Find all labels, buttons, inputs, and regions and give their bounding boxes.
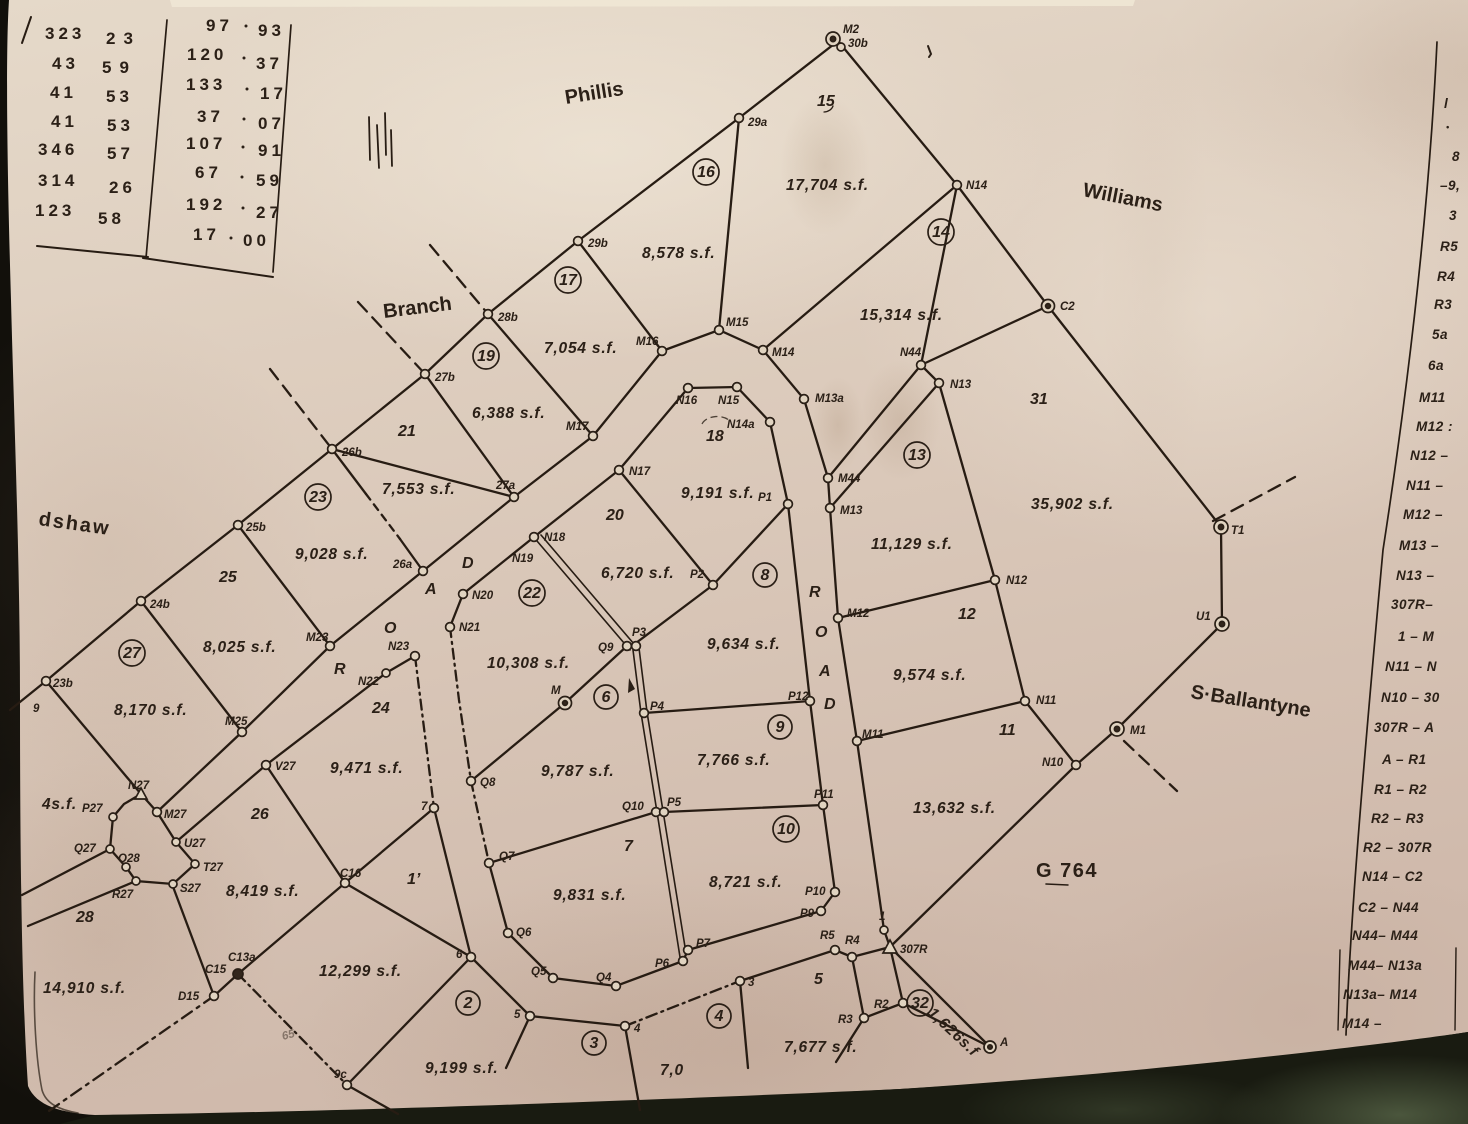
svg-text:29a: 29a <box>747 117 768 129</box>
svg-text:M44: M44 <box>838 473 861 485</box>
svg-text:M15: M15 <box>726 317 749 329</box>
svg-text:A: A <box>818 663 831 680</box>
svg-text:•: • <box>1446 122 1450 132</box>
svg-text:A – R1: A – R1 <box>1381 752 1427 767</box>
svg-text:22: 22 <box>522 585 541 602</box>
svg-text:8,721 s.f.: 8,721 s.f. <box>709 874 783 891</box>
svg-text:3: 3 <box>748 977 755 989</box>
svg-text:Q9: Q9 <box>598 642 614 654</box>
svg-text:37: 37 <box>256 54 283 73</box>
svg-text:N18: N18 <box>544 532 566 544</box>
svg-text:4: 4 <box>633 1023 641 1035</box>
svg-text:1: 1 <box>879 911 885 923</box>
svg-text:24b: 24b <box>149 599 170 611</box>
svg-text:N10: N10 <box>1042 757 1064 769</box>
svg-text:23: 23 <box>106 29 141 48</box>
svg-text:28: 28 <box>75 909 94 926</box>
svg-text:D: D <box>462 555 474 572</box>
svg-text:91: 91 <box>258 141 285 160</box>
svg-text:9: 9 <box>776 719 785 736</box>
svg-text:59: 59 <box>256 171 283 190</box>
svg-text:N21: N21 <box>459 622 480 634</box>
svg-text:4s.f.: 4s.f. <box>41 796 77 813</box>
svg-text:N11 –: N11 – <box>1406 478 1444 493</box>
svg-text:P27: P27 <box>82 803 103 815</box>
svg-text:7,054 s.f.: 7,054 s.f. <box>544 340 618 357</box>
svg-text:Q5: Q5 <box>531 966 547 978</box>
svg-text:R2: R2 <box>874 999 889 1011</box>
svg-text:11,129 s.f.: 11,129 s.f. <box>871 536 953 553</box>
svg-text:7: 7 <box>624 838 634 855</box>
svg-text:11: 11 <box>999 722 1016 739</box>
svg-text:6,388 s.f.: 6,388 s.f. <box>472 405 546 422</box>
svg-text:C13a: C13a <box>228 952 256 964</box>
svg-text:97: 97 <box>206 16 233 35</box>
svg-text:9,191 s.f.: 9,191 s.f. <box>681 485 755 502</box>
svg-text:6,720 s.f.: 6,720 s.f. <box>601 565 675 582</box>
svg-text:17: 17 <box>193 225 220 244</box>
svg-text:N23: N23 <box>388 641 410 653</box>
svg-text:N11: N11 <box>1036 695 1056 707</box>
svg-text:M25: M25 <box>225 716 248 728</box>
svg-text:N12: N12 <box>1006 575 1028 587</box>
svg-text:9: 9 <box>33 703 40 715</box>
svg-text:l: l <box>1444 96 1448 111</box>
svg-text:6: 6 <box>456 949 463 961</box>
svg-text:123: 123 <box>35 201 75 220</box>
svg-text:7,0: 7,0 <box>660 1062 684 1079</box>
svg-text:43: 43 <box>52 54 79 73</box>
svg-text:27a: 27a <box>495 480 516 492</box>
svg-text:P4: P4 <box>650 701 665 713</box>
svg-text:M13a: M13a <box>815 393 844 405</box>
svg-text:M1: M1 <box>1130 725 1146 737</box>
svg-text:9c: 9c <box>334 1069 347 1081</box>
svg-text:R27: R27 <box>112 889 134 901</box>
svg-text:M14 –: M14 – <box>1342 1016 1382 1031</box>
svg-text:21: 21 <box>397 423 416 440</box>
svg-text:A: A <box>424 581 437 598</box>
svg-text:30b: 30b <box>848 38 868 50</box>
svg-text:Q8: Q8 <box>480 777 496 789</box>
svg-text:12: 12 <box>958 606 976 623</box>
svg-text:3: 3 <box>590 1035 599 1052</box>
svg-text:17: 17 <box>559 272 578 289</box>
svg-text:307R: 307R <box>900 944 928 956</box>
svg-text:25b: 25b <box>245 522 266 534</box>
svg-text:32: 32 <box>911 995 929 1012</box>
svg-text:1 – M: 1 – M <box>1398 629 1435 644</box>
svg-text:346: 346 <box>38 140 78 159</box>
svg-text:20: 20 <box>605 507 624 524</box>
svg-text:M27: M27 <box>164 809 187 821</box>
svg-text:R4: R4 <box>1437 269 1455 284</box>
svg-text:8: 8 <box>761 567 770 584</box>
svg-text:9,634 s.f.: 9,634 s.f. <box>707 636 781 653</box>
svg-text:R2 – 307R: R2 – 307R <box>1363 840 1432 855</box>
svg-text:R5: R5 <box>1440 239 1458 254</box>
svg-text:M12: M12 <box>847 608 870 620</box>
svg-text:N44: N44 <box>900 347 922 359</box>
svg-text:Q7: Q7 <box>499 851 515 863</box>
svg-text:M12 –: M12 – <box>1403 507 1443 522</box>
svg-text:24: 24 <box>371 700 390 717</box>
svg-text:31: 31 <box>1030 391 1048 408</box>
svg-text:N12 –: N12 – <box>1410 448 1449 463</box>
svg-text:P5: P5 <box>667 797 682 809</box>
svg-text:192: 192 <box>186 195 226 214</box>
svg-text:27b: 27b <box>434 372 455 384</box>
svg-text:9,199 s.f.: 9,199 s.f. <box>425 1060 499 1077</box>
svg-text:8,578 s.f.: 8,578 s.f. <box>642 245 716 262</box>
svg-text:Q6: Q6 <box>516 927 532 939</box>
svg-text:25: 25 <box>218 569 238 586</box>
svg-text:N13 –: N13 – <box>1396 568 1435 583</box>
svg-text:67: 67 <box>195 163 222 182</box>
svg-text:P9: P9 <box>800 908 815 920</box>
svg-text:13: 13 <box>908 447 926 464</box>
svg-text:A: A <box>999 1037 1008 1049</box>
svg-text:M11: M11 <box>862 729 884 741</box>
svg-text:00: 00 <box>243 231 270 250</box>
svg-text:R3: R3 <box>838 1014 853 1026</box>
svg-text:P12: P12 <box>788 691 809 703</box>
svg-text:18: 18 <box>706 428 724 445</box>
svg-text:P6: P6 <box>655 958 670 970</box>
svg-text:12,299 s.f.: 12,299 s.f. <box>319 963 402 980</box>
svg-text:107: 107 <box>186 134 226 153</box>
svg-text:23b: 23b <box>52 678 73 690</box>
svg-text:T27: T27 <box>203 862 223 874</box>
svg-text:R4: R4 <box>845 935 860 947</box>
svg-text:58: 58 <box>98 209 125 228</box>
svg-text:M: M <box>551 685 561 697</box>
svg-text:07: 07 <box>258 114 285 133</box>
svg-text:T1: T1 <box>1231 525 1244 537</box>
svg-text:N14 – C2: N14 – C2 <box>1362 869 1423 884</box>
svg-text:17,704 s.f.: 17,704 s.f. <box>786 177 869 194</box>
svg-text:P2: P2 <box>690 569 705 581</box>
svg-text:120: 120 <box>187 45 227 64</box>
svg-text:15: 15 <box>817 93 836 110</box>
svg-text:59: 59 <box>102 58 137 77</box>
svg-text:16: 16 <box>697 164 715 181</box>
svg-text:314: 314 <box>38 171 78 190</box>
svg-text:14: 14 <box>932 224 950 241</box>
svg-text:P1: P1 <box>758 492 772 504</box>
svg-text:14,910 s.f.: 14,910 s.f. <box>43 980 126 997</box>
svg-text:Q27: Q27 <box>74 843 96 855</box>
svg-text:8,025 s.f.: 8,025 s.f. <box>203 639 277 656</box>
svg-text:13,632 s.f.: 13,632 s.f. <box>913 800 996 817</box>
svg-text:M13 –: M13 – <box>1399 538 1439 553</box>
svg-text:9,028 s.f.: 9,028 s.f. <box>295 546 369 563</box>
svg-text:35,902 s.f.: 35,902 s.f. <box>1031 496 1114 513</box>
svg-text:C16: C16 <box>340 868 362 880</box>
svg-text:41: 41 <box>50 83 77 102</box>
svg-text:9,471 s.f.: 9,471 s.f. <box>330 760 404 777</box>
svg-text:26b: 26b <box>341 447 362 459</box>
svg-text:R3: R3 <box>1434 297 1452 312</box>
svg-text:7,677 s.f.: 7,677 s.f. <box>784 1039 858 1056</box>
svg-text:5: 5 <box>814 971 824 988</box>
svg-text:23: 23 <box>308 489 327 506</box>
svg-text:8,419 s.f.: 8,419 s.f. <box>226 883 300 900</box>
svg-text:4: 4 <box>714 1008 724 1025</box>
svg-text:M13: M13 <box>840 505 863 517</box>
svg-text:–9,: –9, <box>1440 178 1460 193</box>
svg-text:M44– N13a: M44– N13a <box>1348 958 1422 973</box>
svg-text:C15: C15 <box>205 964 227 976</box>
svg-text:S27: S27 <box>180 883 201 895</box>
svg-text:27: 27 <box>256 203 283 222</box>
svg-text:M12 :: M12 : <box>1416 419 1453 434</box>
svg-text:M11: M11 <box>1419 390 1446 405</box>
svg-text:1’: 1’ <box>407 871 421 888</box>
svg-text:N14: N14 <box>966 180 988 192</box>
svg-text:2: 2 <box>463 995 473 1012</box>
svg-text:N44– M44: N44– M44 <box>1352 928 1418 943</box>
svg-text:19: 19 <box>477 348 495 365</box>
svg-text:7,766 s.f.: 7,766 s.f. <box>697 752 771 769</box>
svg-text:37: 37 <box>197 107 224 126</box>
svg-text:28b: 28b <box>497 312 518 324</box>
svg-text:N27: N27 <box>128 780 150 792</box>
svg-text:N14a: N14a <box>727 419 755 431</box>
svg-text:D: D <box>824 696 836 713</box>
svg-text:15,314 s.f.: 15,314 s.f. <box>860 307 943 324</box>
svg-text:9,831 s.f.: 9,831 s.f. <box>553 887 627 904</box>
svg-text:9,574 s.f.: 9,574 s.f. <box>893 667 967 684</box>
svg-text:O: O <box>815 624 828 641</box>
svg-text:N20: N20 <box>472 590 494 602</box>
svg-text:6: 6 <box>602 689 611 706</box>
svg-text:53: 53 <box>106 87 133 106</box>
svg-text:N22: N22 <box>358 676 380 688</box>
svg-text:Q28: Q28 <box>118 853 140 865</box>
svg-text:N13: N13 <box>950 379 972 391</box>
svg-text:N11 – N: N11 – N <box>1385 659 1437 674</box>
svg-text:M14: M14 <box>772 347 795 359</box>
svg-text:M23: M23 <box>306 632 329 644</box>
svg-text:133: 133 <box>186 75 226 94</box>
svg-text:U27: U27 <box>184 838 206 850</box>
svg-text:17: 17 <box>260 84 287 103</box>
svg-text:7: 7 <box>421 801 428 813</box>
svg-text:93: 93 <box>258 21 285 40</box>
svg-text:N10 – 30: N10 – 30 <box>1381 690 1440 705</box>
svg-text:M17: M17 <box>566 421 589 433</box>
svg-text:Q4: Q4 <box>596 972 612 984</box>
svg-text:3: 3 <box>1449 208 1457 223</box>
svg-text:5: 5 <box>514 1009 521 1021</box>
svg-text:5a: 5a <box>1432 327 1448 342</box>
svg-text:P11: P11 <box>814 789 834 801</box>
svg-text:P7: P7 <box>696 938 711 950</box>
svg-text:N16: N16 <box>676 395 698 407</box>
svg-text:307R–: 307R– <box>1391 597 1433 612</box>
svg-text:P3: P3 <box>632 627 647 639</box>
svg-text:323: 323 <box>45 24 85 43</box>
svg-text:27: 27 <box>122 645 142 662</box>
svg-text:U1: U1 <box>1196 611 1211 623</box>
svg-text:O: O <box>384 620 397 637</box>
svg-text:M2: M2 <box>843 24 860 36</box>
svg-text:R: R <box>334 661 346 678</box>
svg-text:P10: P10 <box>805 886 826 898</box>
svg-text:6a: 6a <box>1428 358 1444 373</box>
svg-text:D15: D15 <box>178 991 200 1003</box>
svg-text:41: 41 <box>51 112 78 131</box>
svg-text:53: 53 <box>107 116 134 135</box>
svg-text:N13a– M14: N13a– M14 <box>1343 987 1417 1002</box>
svg-text:7,553 s.f.: 7,553 s.f. <box>382 481 456 498</box>
svg-text:V27: V27 <box>275 761 296 773</box>
svg-text:26: 26 <box>250 806 269 823</box>
svg-text:G 764: G 764 <box>1036 860 1098 882</box>
svg-text:M16: M16 <box>636 336 659 348</box>
svg-text:307R – A: 307R – A <box>1374 720 1435 735</box>
svg-text:R2 – R3: R2 – R3 <box>1371 811 1424 826</box>
svg-text:29b: 29b <box>587 238 608 250</box>
svg-text:N19: N19 <box>512 553 534 565</box>
svg-text:8,170 s.f.: 8,170 s.f. <box>114 702 188 719</box>
svg-text:C2: C2 <box>1060 301 1075 313</box>
svg-text:10,308 s.f.: 10,308 s.f. <box>487 655 570 672</box>
svg-text:10: 10 <box>777 821 795 838</box>
svg-text:26a: 26a <box>392 559 413 571</box>
svg-text:C2 – N44: C2 – N44 <box>1358 900 1419 915</box>
svg-text:8: 8 <box>1452 149 1460 164</box>
svg-text:N15: N15 <box>718 395 740 407</box>
svg-text:R1 – R2: R1 – R2 <box>1374 782 1427 797</box>
svg-text:Q10: Q10 <box>622 801 644 813</box>
svg-text:9,787 s.f.: 9,787 s.f. <box>541 763 615 780</box>
svg-text:26: 26 <box>109 178 136 197</box>
svg-text:N17: N17 <box>629 466 651 478</box>
svg-text:R: R <box>809 584 821 601</box>
svg-text:R5: R5 <box>820 930 835 942</box>
svg-text:57: 57 <box>107 144 134 163</box>
